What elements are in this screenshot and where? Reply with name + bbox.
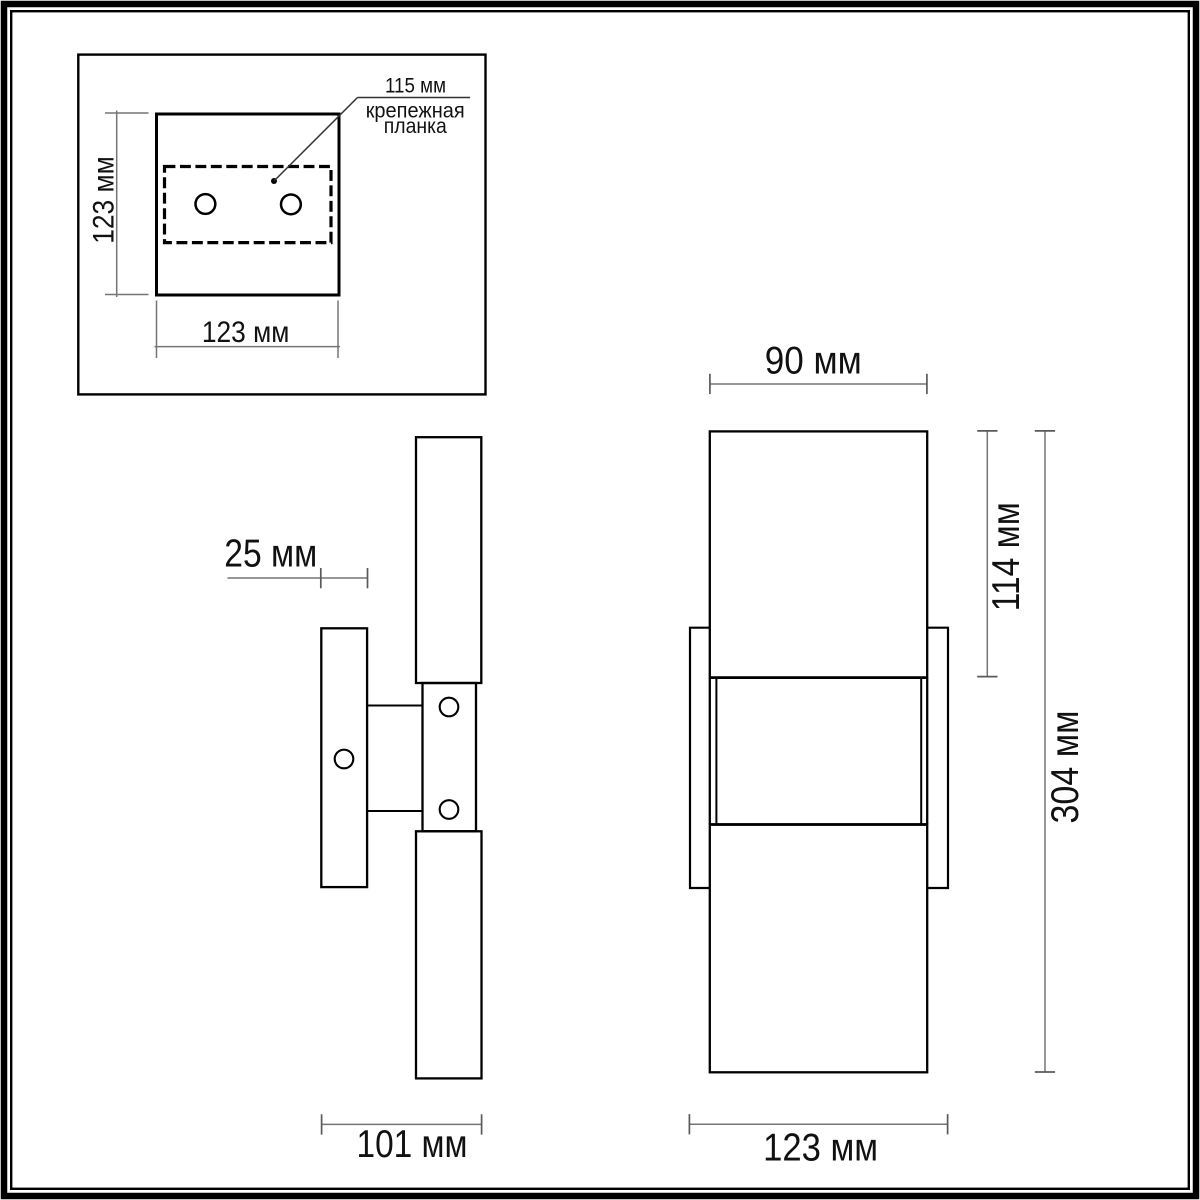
svg-text:123 мм: 123 мм <box>763 1127 878 1170</box>
svg-text:123 мм: 123 мм <box>202 316 290 349</box>
svg-text:115 мм: 115 мм <box>385 73 446 97</box>
svg-text:123 мм: 123 мм <box>88 156 121 244</box>
svg-text:101 мм: 101 мм <box>357 1123 468 1166</box>
svg-text:90 мм: 90 мм <box>765 340 862 383</box>
svg-text:25 мм: 25 мм <box>224 533 317 576</box>
svg-text:114 мм: 114 мм <box>985 502 1028 611</box>
svg-text:планка: планка <box>384 114 447 138</box>
svg-text:304 мм: 304 мм <box>1044 711 1087 824</box>
